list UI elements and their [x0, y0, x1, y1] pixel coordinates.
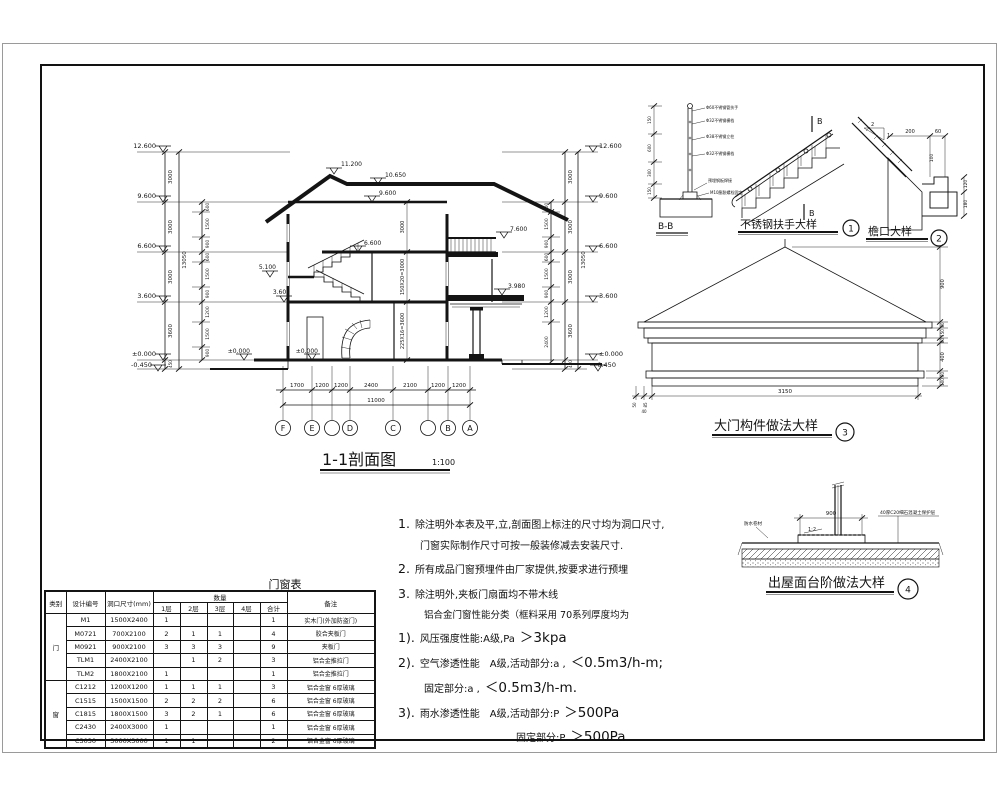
svg-text:1500: 1500 [205, 328, 211, 340]
table-row: TLM12400X2100 1 2 3铝合金推拉门 [45, 654, 375, 667]
svg-text:80: 80 [940, 322, 945, 328]
svg-text:3000: 3000 [568, 220, 574, 234]
note-perf-2b: 固定部分:a ,＜0.5m3/h-m. [424, 680, 750, 697]
svg-text:11.200: 11.200 [341, 161, 362, 168]
svg-text:6.600: 6.600 [364, 240, 381, 247]
svg-text:3.600: 3.600 [137, 292, 156, 300]
table-row: M0721700X2100 21 1 4胶合夹板门 [45, 627, 375, 640]
svg-text:900: 900 [826, 511, 837, 517]
note-1b: 门窗实际制作尺寸可按一般装修减去安装尺寸. [420, 541, 750, 554]
svg-text:1500: 1500 [544, 268, 550, 280]
svg-text:Φ32不锈钢横档: Φ32不锈钢横档 [706, 117, 734, 123]
svg-text:150: 150 [940, 329, 945, 337]
svg-text:80: 80 [940, 338, 945, 344]
sheet-inner-border: 3000 3000 3000 3600 450 13050 600 1500 9… [40, 64, 985, 741]
detail-4-roofstep: 900 1:2 防水卷材 40厚C20细石混凝土保护层 出屋面台阶做法大样 [738, 482, 943, 599]
general-notes: 1.除注明外本表及平,立,剖面图上标注的尺寸均为洞口尺寸, 门窗实际制作尺寸可按… [398, 516, 750, 754]
svg-text:3000: 3000 [568, 170, 574, 184]
interior-dims: 3000 150X20=3000 225X16=3600 [400, 199, 410, 362]
svg-text:2400: 2400 [364, 383, 378, 389]
svg-text:B: B [817, 117, 823, 126]
table-header-row-1: 类别 设计编号 洞口尺寸(mm) 数量 备注 [45, 591, 375, 603]
svg-text:3000: 3000 [168, 220, 174, 234]
svg-text:B: B [445, 424, 451, 433]
svg-text:1500: 1500 [205, 218, 211, 230]
svg-text:3.600: 3.600 [273, 289, 290, 296]
svg-text:E: E [309, 424, 314, 433]
svg-text:3: 3 [842, 429, 848, 439]
detail-3-title: 大门构件做法大样 [714, 419, 818, 434]
svg-text:1: 1 [848, 225, 854, 235]
svg-text:1500: 1500 [544, 218, 550, 230]
svg-text:2: 2 [871, 122, 874, 128]
svg-text:4: 4 [905, 586, 911, 596]
svg-text:100: 100 [929, 154, 935, 163]
svg-text:900: 900 [205, 349, 211, 358]
svg-text:1200: 1200 [431, 383, 445, 389]
svg-text:9.600: 9.600 [599, 192, 618, 200]
section-title-text: 1-1剖面图 [322, 450, 396, 469]
svg-text:120: 120 [963, 180, 969, 189]
dim-total-13050: 13050 [182, 251, 188, 269]
detail-2-title: 檐口大样 [868, 224, 912, 238]
svg-text:±0.000: ±0.000 [228, 348, 250, 355]
detail-1-handrail: 150 600 300 150 Φ60不锈钢管扶手 Φ32不锈钢横档 Φ38不锈… [647, 103, 859, 236]
svg-text:10.650: 10.650 [385, 172, 406, 179]
svg-text:3000: 3000 [568, 270, 574, 284]
building-section: 3000 150X20=3000 225X16=3600 11.200 10.6… [210, 161, 602, 369]
svg-text:9.600: 9.600 [137, 192, 156, 200]
svg-text:D: D [347, 424, 353, 433]
balcony-balustrade [446, 238, 498, 302]
svg-text:300: 300 [647, 169, 652, 177]
section-title: 1-1剖面图 1:100 [320, 450, 455, 473]
grid-bubbles: F E D C B A [276, 421, 478, 436]
table-row: C15151500X1500 22 2 6铝合金窗 6厚玻璃 [45, 694, 375, 707]
section-left-dimension-column: 3000 3000 3000 3600 450 13050 600 1500 9… [131, 142, 290, 372]
svg-text:3.980: 3.980 [508, 283, 525, 290]
svg-text:50: 50 [632, 402, 637, 408]
svg-text:1200: 1200 [544, 306, 550, 318]
svg-text:±0.000: ±0.000 [296, 348, 318, 355]
svg-text:1200: 1200 [315, 383, 329, 389]
svg-text:3600: 3600 [168, 324, 174, 338]
svg-text:1:2: 1:2 [808, 527, 816, 533]
table-row: C30303000X3000 11 2铝合金窗 6厚玻璃 [45, 734, 375, 748]
dim-3000: 3000 [168, 170, 174, 184]
svg-text:3.600: 3.600 [599, 292, 618, 300]
svg-text:900: 900 [940, 279, 946, 289]
svg-text:40: 40 [641, 409, 647, 414]
note-2: 2.所有成品门窗预埋件由厂家提供,按要求进行预埋 [398, 561, 750, 578]
svg-text:13050: 13050 [581, 251, 587, 269]
svg-text:600: 600 [544, 253, 550, 262]
svg-text:600: 600 [205, 253, 211, 262]
entry-canopy [448, 295, 524, 307]
svg-text:3150: 3150 [778, 389, 792, 395]
svg-text:60: 60 [935, 129, 941, 135]
svg-text:900: 900 [205, 290, 211, 299]
svg-text:±0.000: ±0.000 [132, 350, 156, 358]
table-row: 窗 C12121200X1200 11 1 3铝合金窗 6厚玻璃 [45, 680, 375, 693]
svg-text:600: 600 [205, 203, 211, 212]
detail-4-title: 出屋面台阶做法大样 [768, 576, 885, 591]
svg-text:2: 2 [936, 235, 942, 245]
svg-text:180: 180 [963, 200, 969, 209]
grid-bubble-blank [325, 421, 340, 436]
detail-3-gate: 900 80 150 80 400 80 100 3150 50 85 40 大… [632, 239, 948, 441]
porch-column [469, 307, 484, 359]
svg-text:1200: 1200 [334, 383, 348, 389]
svg-text:-0.450: -0.450 [131, 361, 152, 369]
svg-text:6.600: 6.600 [137, 242, 156, 250]
svg-text:9.600: 9.600 [379, 190, 396, 197]
stair-flight-upper [314, 252, 360, 277]
note-perf-1: 1).风压强度性能:A级,Pa＞3kpa [398, 630, 750, 647]
section-scale: 1:100 [432, 458, 455, 467]
svg-text:1200: 1200 [205, 306, 211, 318]
svg-text:A: A [467, 424, 473, 433]
roof-line [266, 176, 568, 222]
grid-bubble-blank [421, 421, 436, 436]
table-row: 门 M11500X2400 1 1实木门(外加防盗门) [45, 614, 375, 627]
note-perf-2: 2).空气渗透性能 A级,活动部分:a ,＜0.5m3/h-m; [398, 655, 750, 672]
detail-2-eave: 2 1 200 60 100 120 180 檐口大样 2 [852, 117, 969, 246]
svg-text:85: 85 [643, 402, 648, 408]
detail-1-title: 不锈钢扶手大样 [740, 217, 817, 231]
svg-text:5.100: 5.100 [259, 264, 276, 271]
svg-text:150X20=3000: 150X20=3000 [400, 259, 406, 295]
detail-bb-title: B-B [658, 222, 673, 232]
table-row: TLM21800X2100 1 1铝合金推拉门 [45, 667, 375, 680]
curved-stair [341, 320, 370, 358]
svg-text:1200: 1200 [452, 383, 466, 389]
svg-text:Φ32不锈钢横档: Φ32不锈钢横档 [706, 150, 734, 156]
note-3: 3.除注明外,夹板门扇面均不带木线 [398, 586, 750, 603]
note-perf-intro: 铝合金门窗性能分类（框料采用 70系列厚度均为 [424, 610, 750, 622]
svg-text:3000: 3000 [168, 270, 174, 284]
svg-text:B: B [809, 209, 815, 218]
svg-text:6.600: 6.600 [599, 242, 618, 250]
note-perf-3: 3).雨水渗透性能 A级,活动部分:P＞500Pa [398, 705, 750, 722]
svg-text:7.600: 7.600 [510, 226, 527, 233]
elev-12600: 12.600 [133, 142, 156, 150]
svg-text:11000: 11000 [367, 398, 385, 404]
note-1: 1.除注明外本表及平,立,剖面图上标注的尺寸均为洞口尺寸, [398, 516, 750, 533]
svg-text:12.600: 12.600 [599, 142, 622, 150]
svg-text:预埋钢板焊接: 预埋钢板焊接 [708, 177, 732, 183]
svg-text:100: 100 [940, 378, 945, 386]
table-row: M0921900X2100 33 3 9夹板门 [45, 640, 375, 653]
svg-text:M10膨胀螺栓固定: M10膨胀螺栓固定 [710, 189, 743, 195]
svg-text:±0.000: ±0.000 [599, 350, 623, 358]
svg-text:2400: 2400 [544, 336, 550, 348]
table-row: C18151800X1500 32 1 6铝合金窗 6厚玻璃 [45, 707, 375, 720]
svg-text:900: 900 [544, 240, 550, 249]
svg-text:3000: 3000 [400, 221, 406, 234]
section-bottom-dims: 1700 1200 1200 2400 2100 1200 1200 11000… [276, 366, 478, 436]
drawing-sheet: 3000 3000 3000 3600 450 13050 600 1500 9… [0, 0, 1000, 800]
svg-text:Φ38不锈钢立柱: Φ38不锈钢立柱 [706, 133, 734, 139]
svg-text:600: 600 [647, 144, 652, 152]
svg-text:1500: 1500 [205, 268, 211, 280]
svg-text:900: 900 [544, 290, 550, 299]
svg-text:1700: 1700 [290, 383, 304, 389]
svg-text:40厚C20细石混凝土保护层: 40厚C20细石混凝土保护层 [880, 509, 936, 516]
section-elevation-marks: 11.200 10.650 9.600 7.600 6.600 5.100 3.… [228, 161, 528, 360]
svg-text:F: F [281, 424, 286, 433]
svg-text:Φ60不锈钢管扶手: Φ60不锈钢管扶手 [706, 104, 738, 110]
door-window-schedule: 类别 设计编号 洞口尺寸(mm) 数量 备注 1层 2层 3层 4层 合计 门 … [44, 590, 376, 749]
table-row: C24302400X3000 1 1铝合金窗 6厚玻璃 [45, 721, 375, 734]
svg-text:200: 200 [905, 129, 915, 135]
svg-text:450: 450 [168, 360, 173, 368]
svg-text:C: C [390, 424, 396, 433]
svg-text:225X16=3600: 225X16=3600 [400, 313, 406, 349]
svg-text:150: 150 [647, 116, 652, 124]
section-right-dimension-column: 600 1500 900 600 1500 900 1200 2400 3000… [502, 142, 623, 372]
svg-text:150: 150 [647, 187, 652, 195]
svg-text:900: 900 [205, 240, 211, 249]
svg-text:2100: 2100 [403, 383, 417, 389]
svg-text:80: 80 [940, 372, 945, 378]
svg-text:3600: 3600 [568, 324, 574, 338]
note-perf-3b: 固定部分:P＞500Pa [516, 729, 750, 746]
svg-text:400: 400 [940, 352, 946, 362]
